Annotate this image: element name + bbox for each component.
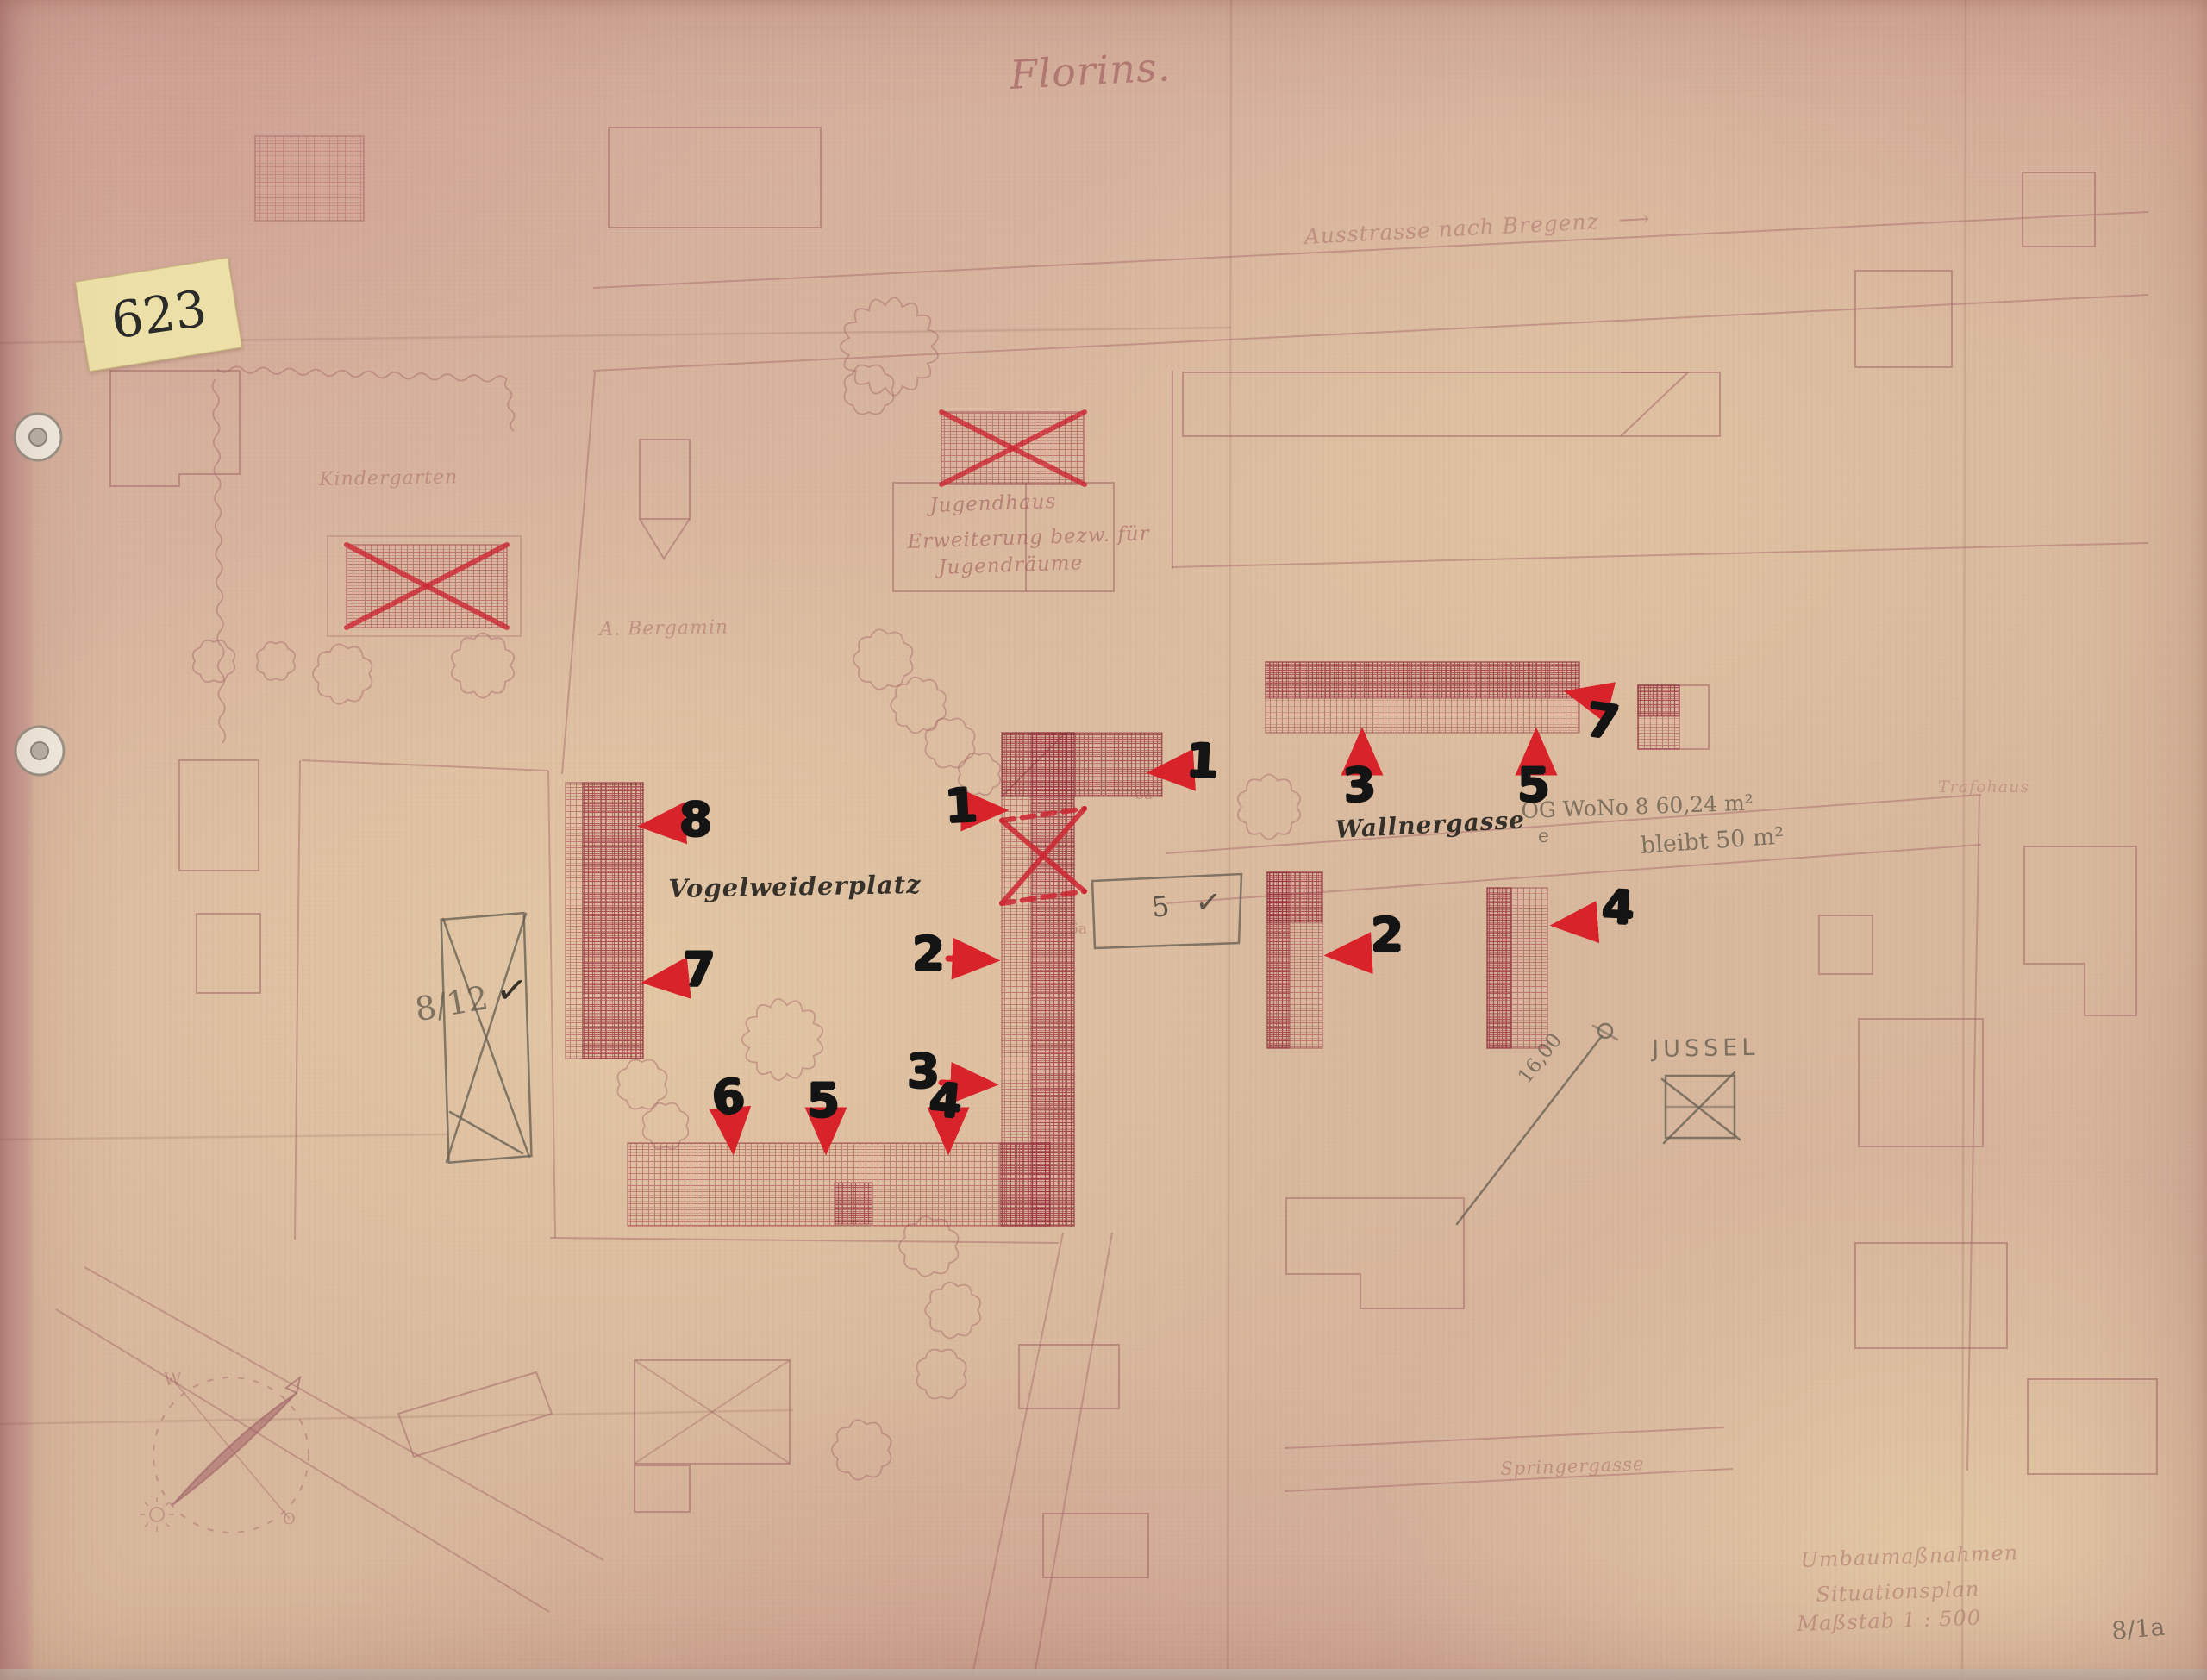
- demolition-marker-u-left-1: 1: [944, 782, 978, 830]
- owner-name-label: A. Bergamin: [599, 616, 728, 640]
- demolition-marker-u-bottom-4: 4: [928, 1076, 964, 1125]
- platz-label: Vogelweiderplatz: [668, 870, 922, 903]
- compass-west-label: W: [164, 1369, 182, 1390]
- compass-east-label: O: [283, 1510, 296, 1528]
- demolition-marker-row-3: 3: [1341, 761, 1377, 809]
- plan-title: Florins.: [1009, 43, 1172, 98]
- sheet-number: 8/1a: [2110, 1613, 2166, 1646]
- parcel-checkmark: ✓: [494, 967, 530, 1015]
- road-direction-arrow: ⟶: [1618, 206, 1651, 233]
- street-lines: [56, 212, 2148, 1675]
- plan-drawing: [0, 0, 2207, 1680]
- demolition-marker-row-7: 7: [1583, 696, 1622, 747]
- flat-area-note-e: e: [1538, 826, 1549, 847]
- trafo-label: Trafohaus: [1938, 778, 2029, 796]
- demolition-marker-u-bottom-5: 5: [807, 1077, 840, 1124]
- box-checkmark: ✓: [1194, 884, 1222, 921]
- parcel-6a-side: 6a: [1069, 921, 1087, 938]
- demolition-marker-u-top-1: 1: [1185, 737, 1220, 785]
- archive-number: 623: [107, 279, 209, 351]
- demolition-marker-u-west-8: 8: [679, 796, 712, 843]
- box-digit: 5: [1150, 890, 1171, 924]
- scan-edge: [0, 1669, 2207, 1680]
- parcel-6a-top: 6a: [1135, 786, 1153, 803]
- demolition-marker-mid-2: 2: [1371, 912, 1404, 959]
- demolition-marker-u-west-7: 7: [683, 946, 716, 993]
- youth-house-label-1: Jugendhaus: [929, 490, 1057, 517]
- punch-holes: [15, 414, 64, 775]
- demolition-marker-row-5: 5: [1517, 762, 1550, 809]
- demolition-marker-u-bottom-6: 6: [710, 1072, 747, 1122]
- compass-rose: [140, 1377, 309, 1533]
- jussel-label: JUSSEL: [1652, 1034, 1760, 1063]
- scanned-site-plan: 623 Florins. Ausstrasse nach Bregenz ⟶ K…: [0, 0, 2207, 1680]
- kindergarten-label: Kindergarten: [319, 466, 458, 490]
- demolition-marker-east-4: 4: [1601, 884, 1635, 932]
- demolition-marker-u-left-2: 2: [912, 931, 945, 977]
